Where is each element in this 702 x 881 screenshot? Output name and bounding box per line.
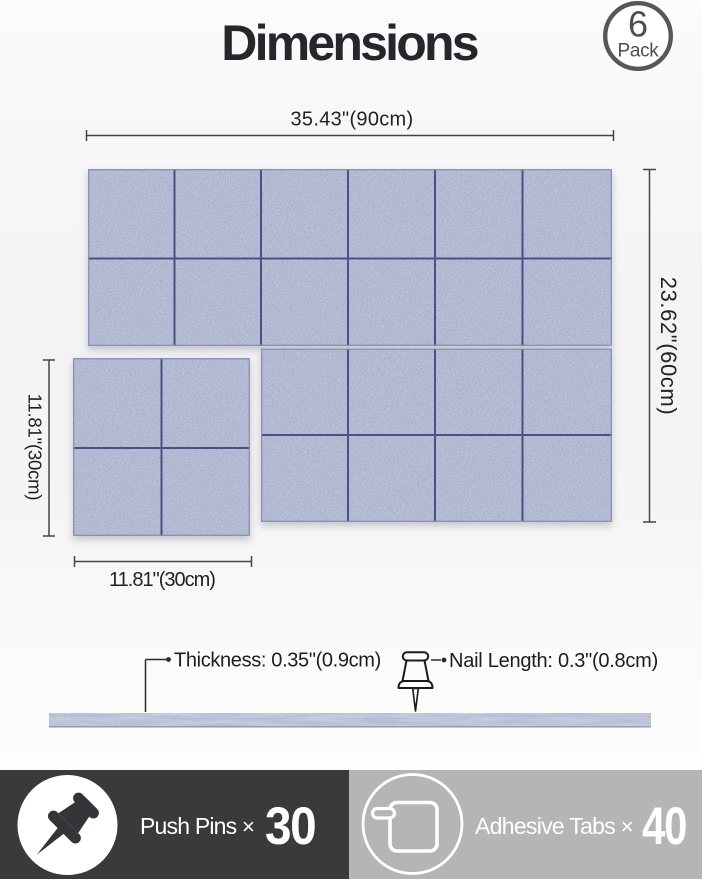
svg-text:11.81"(30cm): 11.81"(30cm) [25, 394, 46, 501]
svg-text:Nail Length: 0.3"(0.8cm): Nail Length: 0.3"(0.8cm) [449, 650, 658, 672]
svg-text:23.62"(60cm): 23.62"(60cm) [656, 277, 681, 416]
svg-text:35.43"(90cm): 35.43"(90cm) [291, 109, 414, 131]
svg-text:11.81"(30cm): 11.81"(30cm) [109, 569, 215, 591]
svg-text:Thickness: 0.35"(0.9cm): Thickness: 0.35"(0.9cm) [174, 650, 381, 672]
